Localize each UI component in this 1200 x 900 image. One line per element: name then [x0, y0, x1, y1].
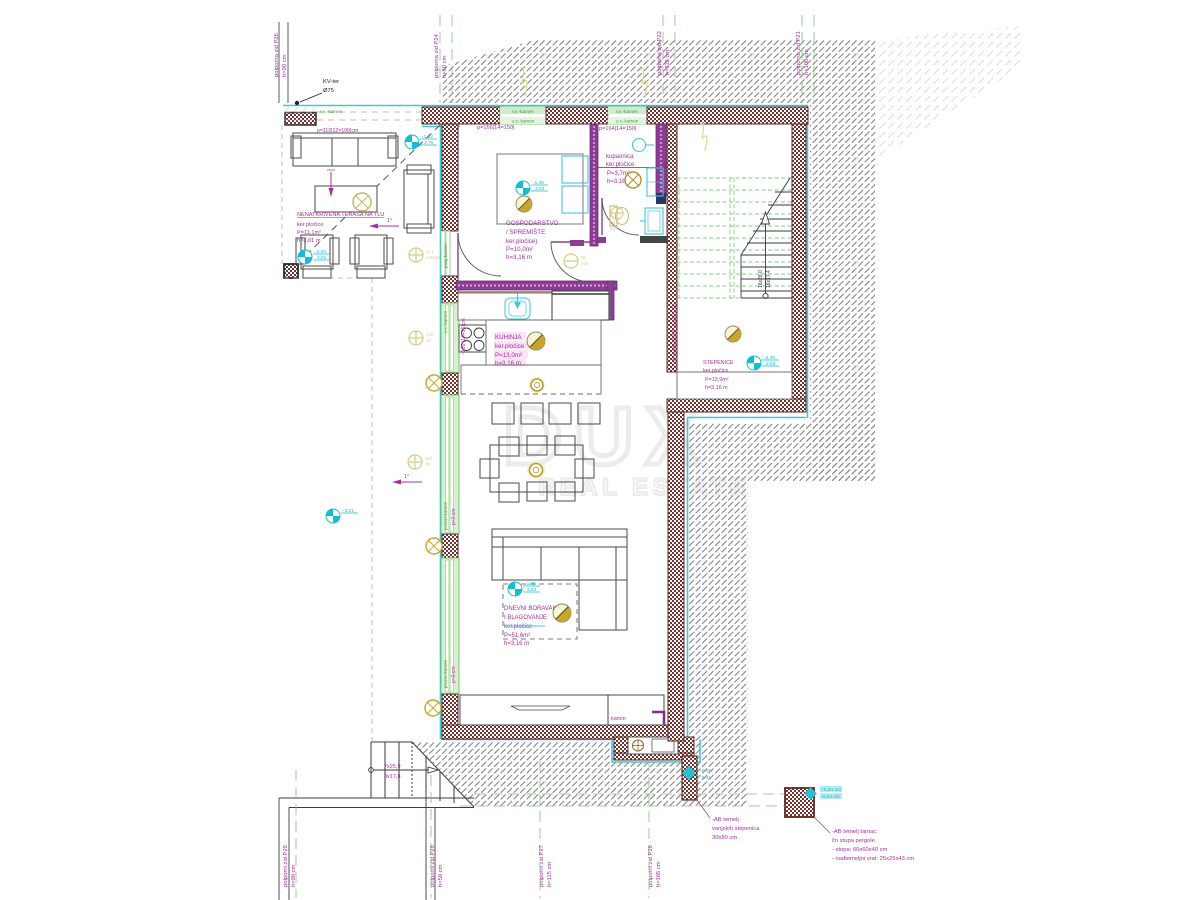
- svg-text:+0,04 ost: +0,04 ost: [821, 787, 842, 793]
- svg-text:3,63: 3,63: [535, 186, 545, 192]
- svg-text:h=115 cm: h=115 cm: [547, 862, 553, 887]
- svg-text:h=3,01 m: h=3,01 m: [297, 238, 321, 244]
- svg-text:140/40: 140/40: [426, 255, 440, 260]
- svg-text:v.s.-kamen: v.s.-kamen: [512, 109, 535, 114]
- svg-text:~100 (14+95)cm: ~100 (14+95)cm: [461, 318, 467, 355]
- svg-text:v.s.-kamen: v.s.-kamen: [320, 109, 343, 114]
- svg-text:16x17,4: 16x17,4: [766, 270, 772, 288]
- svg-text:P=11,1m²: P=11,1m²: [297, 230, 321, 236]
- svg-text:-3,21: -3,21: [343, 508, 354, 514]
- svg-text:p=164|14=150|: p=164|14=150|: [599, 126, 636, 132]
- svg-text:h=115 cm: h=115 cm: [665, 50, 671, 75]
- svg-text:u.s.-kamen: u.s.-kamen: [512, 119, 535, 124]
- svg-text:P=10,0m²: P=10,0m²: [506, 246, 533, 253]
- svg-text:1+1: 1+1: [426, 249, 434, 254]
- svg-text:KV-ter: KV-ter: [323, 79, 339, 85]
- svg-text:-AB temelj: -AB temelj: [712, 817, 739, 823]
- svg-text:ker.pločice: ker.pločice: [297, 222, 323, 228]
- svg-text:- stopa: 60x60x40 cm: - stopa: 60x60x40 cm: [832, 847, 888, 853]
- svg-text:-AB temelj tamac:: -AB temelj tamac:: [832, 829, 878, 835]
- svg-text:ker.pločice: ker.pločice: [504, 624, 533, 630]
- svg-text:p=112|12=100|cm: p=112|12=100|cm: [317, 128, 358, 134]
- svg-text:-0,48: -0,48: [700, 768, 711, 774]
- svg-text:/ SPREMIŠTE: / SPREMIŠTE: [506, 229, 545, 236]
- svg-text:DNEVNI BORAVAK: DNEVNI BORAVAK: [504, 606, 556, 612]
- svg-text:140: 140: [426, 332, 434, 337]
- svg-text:ker.pločice: ker.pločice: [703, 368, 728, 374]
- svg-text:potporna zid P25: potporna zid P25: [274, 33, 280, 77]
- svg-text:db greda 20/66 -0,10/-1,02: db greda 20/66 -0,10/-1,02: [672, 304, 678, 363]
- svg-text:200: 200: [610, 226, 618, 231]
- svg-text:prozor-kamen: prozor-kamen: [443, 659, 448, 688]
- svg-text:1°: 1°: [404, 474, 409, 480]
- svg-text:v.s.-kamen: v.s.-kamen: [616, 109, 639, 114]
- svg-text:čn stupa pergole: čn stupa pergole: [832, 838, 875, 844]
- svg-text:110: 110: [425, 456, 433, 461]
- svg-text:-0,04 ost: -0,04 ost: [821, 794, 840, 800]
- svg-text:I BLAGOVANJE: I BLAGOVANJE: [504, 615, 547, 621]
- svg-text:vanjskih stepenica: vanjskih stepenica: [712, 826, 760, 832]
- svg-text:GOSPODARSTVO: GOSPODARSTVO: [506, 220, 559, 227]
- svg-text:v.s.-kamen: v.s.-kamen: [443, 310, 448, 333]
- svg-text:1°: 1°: [387, 218, 392, 224]
- svg-text:-2,49: -2,49: [764, 355, 775, 361]
- svg-text:STEPENICE: STEPENICE: [703, 360, 734, 366]
- svg-text:30: 30: [425, 462, 431, 467]
- svg-text:h=90 cm: h=90 cm: [282, 54, 288, 77]
- svg-text:ker.pločice: ker.pločice: [495, 343, 525, 350]
- svg-text:-1,45: -1,45: [533, 180, 544, 186]
- svg-text:potporna zid P21: potporna zid P21: [796, 31, 802, 75]
- svg-text:h=165 cm: h=165 cm: [656, 861, 662, 887]
- svg-text:3,63: 3,63: [527, 587, 537, 593]
- svg-text:3,01: 3,01: [317, 255, 327, 261]
- svg-text:P=51,6m²: P=51,6m²: [504, 633, 530, 639]
- svg-text:p=166|14=150|: p=166|14=150|: [477, 125, 514, 131]
- svg-text:kupaonica: kupaonica: [606, 154, 634, 160]
- svg-text:h=3,16 m: h=3,16 m: [506, 254, 532, 261]
- svg-text:h=100 cm: h=100 cm: [804, 49, 810, 75]
- svg-text:KUHINJA: KUHINJA: [495, 334, 522, 341]
- svg-text:90: 90: [581, 255, 587, 260]
- svg-text:7x25,9: 7x25,9: [384, 764, 401, 770]
- svg-text:200: 200: [581, 261, 589, 266]
- svg-text:prag-kamen: prag-kamen: [443, 243, 448, 268]
- svg-text:h=3,16 m: h=3,16 m: [705, 385, 728, 391]
- svg-text:-1,32: -1,32: [422, 134, 433, 140]
- svg-text:p=0 cm: p=0 cm: [451, 508, 457, 525]
- svg-text:NENATKRIVENA TERASA NA TLU: NENATKRIVENA TERASA NA TLU: [297, 212, 384, 218]
- svg-text:p=0 cm: p=0 cm: [451, 666, 457, 683]
- svg-text:40: 40: [426, 338, 432, 343]
- svg-text:3,76: 3,76: [424, 140, 434, 146]
- svg-text:-1,45: -1,45: [525, 581, 536, 587]
- svg-text:Ø75: Ø75: [323, 88, 334, 94]
- svg-text:h=3,16 m: h=3,16 m: [495, 360, 521, 367]
- svg-text:60: 60: [610, 220, 616, 225]
- svg-text:2,53: 2,53: [766, 361, 776, 367]
- svg-text:30x80 cm: 30x80 cm: [712, 835, 737, 841]
- svg-text:prozor-kamen: prozor-kamen: [443, 501, 448, 530]
- svg-text:h=50 cm: h=50 cm: [438, 864, 444, 887]
- svg-text:h=3,16 m: h=3,16 m: [504, 641, 529, 647]
- svg-text:16x28,0: 16x28,0: [758, 270, 764, 288]
- svg-text:8x17,8: 8x17,8: [384, 774, 401, 780]
- svg-text:kamin: kamin: [611, 716, 626, 722]
- svg-text:-2,04: -2,04: [315, 249, 326, 255]
- svg-text:potporna zid P22: potporna zid P22: [657, 31, 663, 75]
- svg-text:potporni zid P28: potporni zid P28: [283, 845, 289, 887]
- svg-text:u.s.-kamen: u.s.-kamen: [616, 119, 639, 124]
- svg-text:-0,41: -0,41: [700, 775, 711, 781]
- svg-text:ker.pločice): ker.pločice): [506, 238, 537, 245]
- svg-text:P=13,0m²: P=13,0m²: [495, 352, 522, 359]
- svg-text:h=50 cm: h=50 cm: [442, 55, 448, 78]
- svg-text:potporna zid P24: potporna zid P24: [434, 33, 440, 78]
- svg-text:- nadtemeljni vrat: 25x25x43 c: - nadtemeljni vrat: 25x25x43 cm: [832, 856, 914, 862]
- svg-text:P=13,9m²: P=13,9m²: [705, 377, 729, 383]
